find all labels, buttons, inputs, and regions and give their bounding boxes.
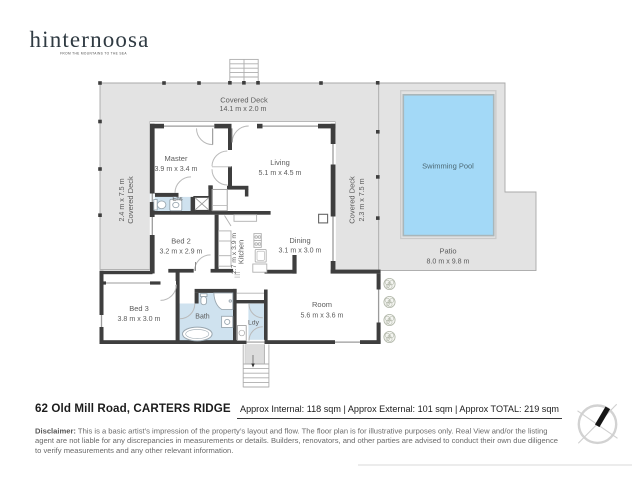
svg-text:3.9 m x 3.4 m: 3.9 m x 3.4 m [155,165,198,173]
svg-text:Covered Deck: Covered Deck [126,176,135,224]
svg-text:Bath: Bath [195,314,210,321]
svg-text:to verify measurements and any: to verify measurements and any other rel… [35,446,233,455]
svg-text:Room: Room [312,300,332,309]
svg-text:Swimming Pool: Swimming Pool [422,162,474,171]
svg-text:agent are not liable for any d: agent are not liable for any discrepanci… [35,436,558,445]
svg-text:5.1 m x 4.5 m: 5.1 m x 4.5 m [259,169,302,177]
svg-text:Patio: Patio [439,247,456,256]
svg-text:14.1 m x 2.0 m: 14.1 m x 2.0 m [220,105,267,113]
svg-text:Dining: Dining [289,236,310,245]
svg-text:Ens: Ens [172,197,182,203]
svg-text:3.8 m x 3.0 m: 3.8 m x 3.0 m [118,315,161,323]
svg-text:Living: Living [270,158,290,167]
svg-text:Covered Deck: Covered Deck [348,176,357,224]
svg-text:62 Old Mill Road, CARTERS RIDG: 62 Old Mill Road, CARTERS RIDGE [35,402,231,415]
svg-text:Approx Internal: 118 sqm |: Approx Internal: 118 sqm | Approx Extern… [240,404,559,414]
svg-text:3.1 m x 3.0 m: 3.1 m x 3.0 m [279,247,322,255]
svg-text:2.7 m x 3.9 m: 2.7 m x 3.9 m [231,233,238,275]
svg-text:Disclaimer: This is a basic a: Disclaimer: This is a basic artist’s imp… [35,427,547,436]
svg-text:Bed 3: Bed 3 [129,304,149,313]
svg-text:5.6 m x 3.6 m: 5.6 m x 3.6 m [301,312,344,320]
svg-text:3.2 m x 2.9 m: 3.2 m x 2.9 m [160,248,203,256]
svg-text:hinternoosa: hinternoosa [30,27,150,52]
svg-text:Bed 2: Bed 2 [171,237,191,246]
svg-text:8.0 m x 9.8 m: 8.0 m x 9.8 m [427,258,470,266]
svg-text:2.3 m x 7.5 m: 2.3 m x 7.5 m [358,178,366,221]
svg-text:Covered Deck: Covered Deck [220,96,268,105]
svg-text:Master: Master [165,154,188,163]
svg-text:Ldy: Ldy [248,320,260,327]
svg-text:2.4 m x 7.5 m: 2.4 m x 7.5 m [118,178,126,221]
svg-text:FROM THE MOUNTAINS TO THE SEA: FROM THE MOUNTAINS TO THE SEA [60,51,127,55]
